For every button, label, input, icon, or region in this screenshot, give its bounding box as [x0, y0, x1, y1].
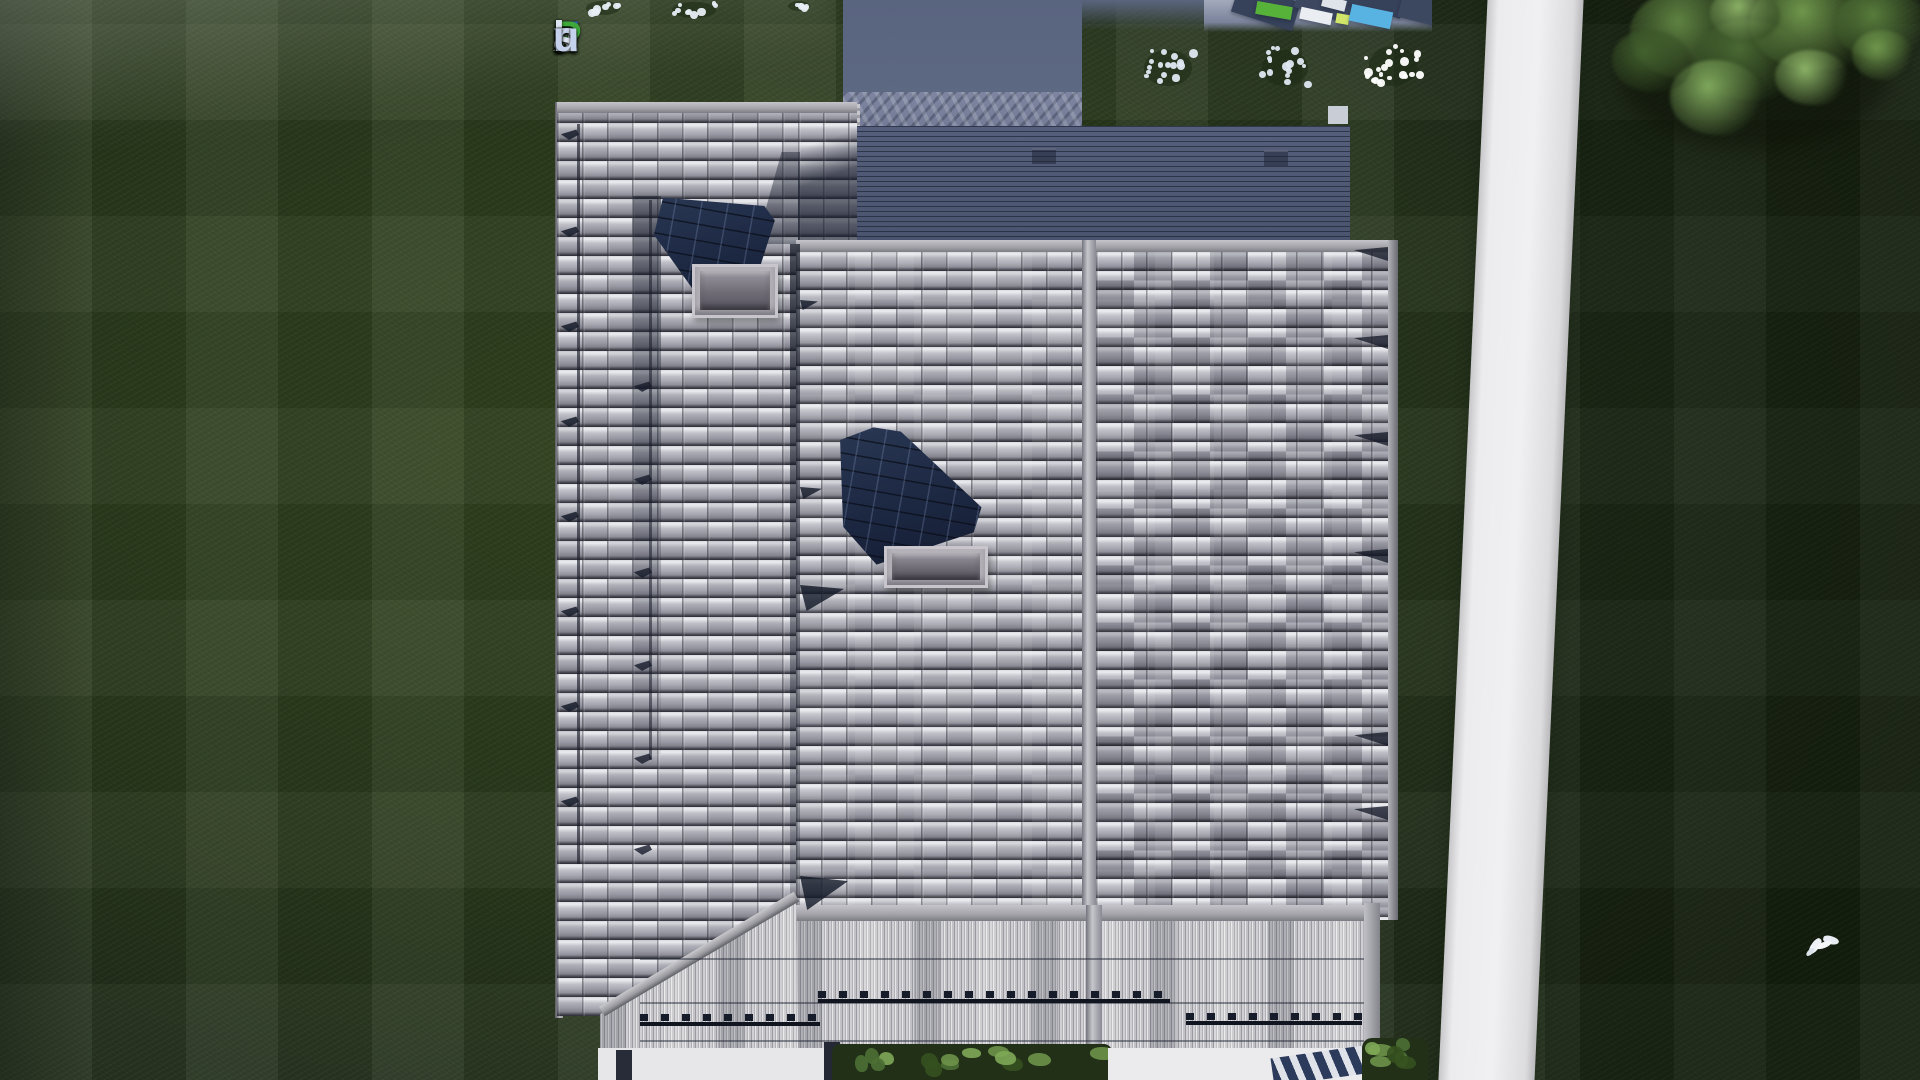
hedge-leaf-blob: [1365, 1042, 1380, 1055]
hedge-leaf-blob: [941, 1054, 959, 1066]
flower-dot: [1409, 72, 1415, 78]
flower-dot: [1266, 50, 1271, 55]
hedge-leaf-blob: [1387, 1046, 1404, 1062]
tree-leaf-blob: [1775, 50, 1850, 105]
flower-dot: [1364, 56, 1368, 60]
snow-retention-row: [1186, 1013, 1362, 1025]
flower-dot: [697, 8, 705, 16]
snow-retention-row: [818, 991, 1170, 1003]
flat-roof-vent: [1032, 148, 1056, 164]
ridge-beam: [1082, 240, 1096, 925]
hedge-leaf-blob: [855, 1055, 868, 1073]
watermark-letter: u: [553, 16, 579, 59]
roof-fascia-center: [796, 240, 1082, 252]
display-platform: [1204, 0, 1432, 32]
flower-dot: [1149, 59, 1154, 64]
hedge-leaf-blob: [1028, 1053, 1050, 1066]
hedge-leaf-blob: [962, 1048, 981, 1058]
flower-dot: [675, 8, 681, 14]
terrace-wall-strip: [1082, 0, 1204, 30]
flower-dot: [1416, 71, 1424, 79]
roof-fascia-right: [1096, 240, 1396, 252]
flower-dot: [616, 3, 621, 8]
roof-shadow-overlay: [798, 104, 857, 244]
support-post: [616, 1050, 632, 1080]
hedge-bushes: [832, 1044, 1112, 1080]
flower-dot: [1304, 81, 1311, 88]
flower-bush: [1258, 46, 1312, 90]
flower-dot: [1161, 72, 1167, 78]
flower-dot: [1172, 74, 1179, 81]
flower-dot: [588, 9, 596, 17]
flower-dot: [1365, 74, 1370, 79]
flower-bush: [668, 0, 720, 20]
flower-dot: [1282, 62, 1291, 71]
flat-roof-vent: [1264, 150, 1288, 166]
snow-retention-row: [640, 1014, 820, 1026]
flower-dot: [1372, 77, 1379, 84]
flower-bush: [1140, 46, 1196, 90]
roof-fascia-east: [1388, 240, 1398, 920]
hedge-leaf-blob: [995, 1051, 1016, 1064]
veranda-fascia-beam: [796, 905, 1368, 921]
flower-dot: [1158, 62, 1164, 68]
flower-bush: [1364, 42, 1422, 90]
flower-dot: [1259, 71, 1266, 78]
shadow-strip: [633, 196, 661, 754]
flower-dot: [1177, 59, 1185, 67]
terrace-stone-band: [843, 92, 1082, 128]
flower-dot: [1144, 74, 1148, 78]
hedge-bushes: [1362, 1038, 1428, 1080]
terrace-patio: [843, 0, 1082, 96]
skylight-box: [692, 264, 778, 318]
corrugated-shading: [796, 921, 1368, 1053]
flower-dot: [1291, 47, 1299, 55]
roof-corner-slab: [1328, 106, 1348, 124]
end-beam: [1364, 903, 1380, 1055]
skylight-glass: [700, 271, 770, 310]
display-object-slab: [1335, 13, 1350, 25]
aerial-render-scene: FixPlans.ru: [0, 0, 1920, 1080]
tree-leaf-blob: [1852, 30, 1914, 80]
flat-roof: [843, 126, 1350, 243]
tree-canopy: [1590, 0, 1920, 210]
flower-dot: [1157, 78, 1163, 84]
valley-gap: [790, 244, 800, 910]
roof-rod: [640, 958, 1364, 960]
tree-leaf-blob: [1612, 30, 1692, 92]
flower-dot: [1271, 46, 1275, 50]
flower-dot: [1284, 79, 1290, 85]
hedge-leaf-blob: [871, 1058, 885, 1071]
flower-dot: [1147, 65, 1152, 70]
flower-dot: [1189, 49, 1198, 58]
display-object-slab: [1397, 0, 1432, 26]
flower-bush: [786, 0, 812, 12]
snow-guard-rail: [577, 124, 580, 864]
skylight-box: [884, 546, 988, 588]
flower-bush: [583, 0, 623, 16]
skylight-glass: [892, 553, 980, 580]
roof-fascia-top: [557, 102, 857, 113]
flower-dot: [1414, 57, 1419, 62]
driveway: [598, 1048, 832, 1080]
support-post: [1086, 905, 1102, 1053]
hedge-leaf-blob: [921, 1053, 938, 1069]
roof-rod: [640, 1040, 1364, 1042]
flower-dot: [1161, 49, 1167, 55]
